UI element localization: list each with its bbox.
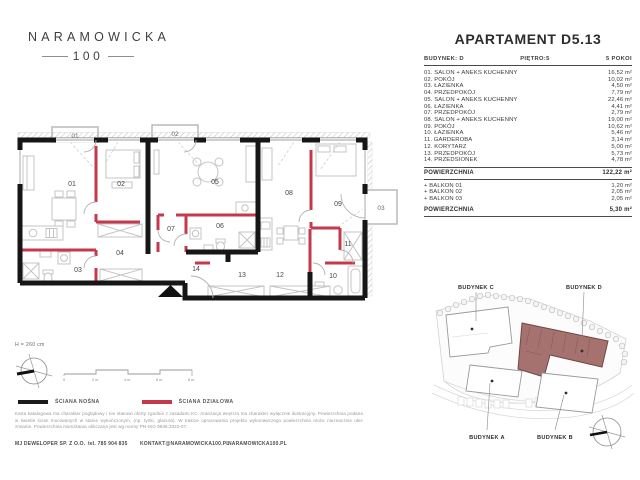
room-area: 4,50 m²: [611, 83, 632, 90]
site-building-b: [536, 373, 598, 413]
room-area: 3,14 m²: [611, 137, 632, 144]
meta-building: BUDYNEK: D: [424, 56, 464, 62]
balcony-item: + BALKON 032,05 m²: [424, 196, 632, 203]
footer-email: KONTAKT@NARAMOWICKA100.PL: [140, 441, 230, 447]
brand-subline: 100: [28, 49, 148, 63]
balcony-item: + BALKON 011,20 m²: [424, 183, 632, 190]
scale-tick-8m: 8 m: [188, 378, 194, 382]
room-area: 16,52 m²: [608, 70, 632, 77]
catalog-card-page: { "brand": {"name": "NARAMOWICKA", "numb…: [0, 0, 640, 480]
room-list-item: 01. SALON + ANEKS KUCHENNY16,52 m²: [424, 70, 632, 77]
balcony-number-03: 03: [377, 205, 385, 212]
room-number-06: 06: [216, 223, 224, 230]
room-list-item: 04. PRZEDPOKÓJ7,79 m²: [424, 90, 632, 97]
room-area: 22,46 m²: [608, 97, 632, 104]
apartment-info-panel: APARTAMENT D5.13 BUDYNEK: D PIĘTRO:5 5 P…: [424, 31, 632, 217]
room-area: 2,79 m²: [611, 110, 632, 117]
room-list-item: 02. POKÓJ10,02 m²: [424, 77, 632, 84]
room-list-item: 12. KORYTARZ5,00 m²: [424, 144, 632, 151]
room-area: 5,73 m²: [611, 151, 632, 158]
room-number-07: 07: [167, 226, 175, 233]
room-area: 4,41 m²: [611, 104, 632, 111]
load-bearing-label: ŚCIANA NOŚNA: [55, 399, 100, 405]
room-label: 14. PRZEDSIONEK: [424, 157, 478, 164]
room-area: 10,62 m²: [608, 124, 632, 131]
site-label-building-a: BUDYNEK A: [469, 435, 505, 441]
scale-tick-6m: 6 m: [156, 378, 162, 382]
balcony-area: 1,20 m²: [611, 183, 632, 190]
site-compass: [589, 415, 625, 449]
room-label: 04. PRZEDPOKÓJ: [424, 90, 475, 97]
site-label-building-c: BUDYNEK C: [458, 285, 494, 291]
room-number-11: 11: [344, 241, 351, 248]
room-label: 05. SALON + ANEKS KUCHENNY: [424, 97, 517, 104]
partition-label: ŚCIANA DZIAŁOWA: [179, 399, 234, 405]
wall-legend: ŚCIANA NOŚNA ŚCIANA DZIAŁOWA: [18, 399, 233, 405]
meta-rooms: 5 POKOI: [606, 56, 632, 62]
page-title: APARTAMENT D5.13: [424, 31, 632, 47]
room-area: 10,02 m²: [608, 77, 632, 84]
footer-website: NARAMOWICKA100.PL: [228, 441, 287, 447]
room-area: 4,78 m²: [611, 157, 632, 164]
balcony-item: + BALKON 022,05 m²: [424, 189, 632, 196]
balcony-label: + BALKON 02: [424, 189, 462, 196]
room-list-item: 10. ŁAZIENKA5,46 m²: [424, 130, 632, 137]
room-list-item: 07. PRZEDPOKÓJ2,79 m²: [424, 110, 632, 117]
balcony-total-value: 5,30 m²: [610, 207, 632, 213]
logo-line-right: [108, 56, 134, 57]
room-number-13: 13: [238, 272, 246, 279]
partition-swatch: [142, 400, 172, 405]
site-building-a: [466, 365, 522, 397]
total-area-label: POWIERZCHNIA: [424, 170, 474, 176]
compass-needle: [17, 371, 34, 374]
total-area-value: 122,22 m²: [602, 170, 632, 176]
legend-load-bearing: ŚCIANA NOŚNA: [18, 399, 100, 405]
room-label: 02. POKÓJ: [424, 77, 455, 84]
legend-partition: ŚCIANA DZIAŁOWA: [142, 399, 234, 405]
room-area: 5,00 m²: [611, 144, 632, 151]
logo-line-left: [42, 56, 68, 57]
scale-tick-2m: 2 m: [92, 378, 98, 382]
footer-phone: tel. 785 904 835: [88, 441, 128, 447]
room-list-item: 08. SALON + ANEKS KUCHENNY19,00 m²: [424, 117, 632, 124]
room-label: 10. ŁAZIENKA: [424, 130, 464, 137]
balcony-area: 2,05 m²: [611, 189, 632, 196]
room-area: 5,46 m²: [611, 130, 632, 137]
room-label: 12. KORYTARZ: [424, 144, 467, 151]
scale-tick-0: 0: [63, 378, 65, 382]
room-label: 08. SALON + ANEKS KUCHENNY: [424, 117, 517, 124]
room-area: 19,00 m²: [608, 117, 632, 124]
room-number-02: 02: [117, 181, 125, 188]
room-number-12: 12: [276, 272, 284, 279]
balcony-total-label: POWIERZCHNIA: [424, 207, 474, 213]
floor-plan: 01 02 03 04 05 06 07 08 09 10 11 12 13 1…: [8, 122, 428, 337]
room-number-10: 10: [329, 273, 337, 280]
load-bearing-swatch: [18, 400, 48, 405]
brand-number: 100: [73, 49, 104, 63]
room-list: 01. SALON + ANEKS KUCHENNY16,52 m² 02. P…: [424, 70, 632, 164]
ceiling-height-note: H = 260 cm: [15, 342, 45, 348]
room-number-14: 14: [192, 266, 200, 273]
footer-company: MJ DEWELOPER SP. Z O.O.: [15, 441, 85, 447]
room-label: 13. PRZEDPOKÓJ: [424, 151, 475, 158]
scale-bar: 0 2 m 4 m 6 m 8 m: [62, 364, 198, 382]
room-list-item: 13. PRZEDPOKÓJ5,73 m²: [424, 151, 632, 158]
room-area: 7,79 m²: [611, 90, 632, 97]
room-label: 07. PRZEDPOKÓJ: [424, 110, 475, 117]
room-list-item: 05. SALON + ANEKS KUCHENNY22,46 m²: [424, 97, 632, 104]
site-label-building-d: BUDYNEK D: [566, 285, 602, 291]
site-label-building-b: BUDYNEK B: [537, 435, 573, 441]
balcony-area: 2,05 m²: [611, 196, 632, 203]
compass-needle: [590, 432, 607, 435]
room-number-03: 03: [74, 267, 82, 274]
entrance-marker: [158, 285, 183, 297]
room-number-08: 08: [285, 190, 293, 197]
balcony-label: + BALKON 03: [424, 196, 462, 203]
balcony-number-02: 02: [171, 131, 179, 138]
room-number-01: 01: [68, 181, 76, 188]
meta-floor: PIĘTRO:5: [520, 56, 550, 62]
site-plan: BUDYNEK C BUDYNEK D BUDYNEK A BUDYNEK B: [430, 281, 636, 477]
room-number-05: 05: [211, 179, 219, 186]
plan-compass: [12, 352, 56, 396]
total-area-row: POWIERZCHNIA 122,22 m²: [424, 167, 632, 180]
room-label: 11. GARDEROBA: [424, 137, 472, 144]
room-label: 09. POKÓJ: [424, 124, 455, 131]
scale-tick-4m: 4 m: [124, 378, 130, 382]
room-number-09: 09: [334, 201, 342, 208]
room-list-item: 09. POKÓJ10,62 m²: [424, 124, 632, 131]
room-number-04: 04: [116, 250, 124, 257]
brand-logo: NARAMOWICKA 100: [28, 30, 148, 63]
room-label: 01. SALON + ANEKS KUCHENNY: [424, 70, 517, 77]
balcony-total-row: POWIERZCHNIA 5,30 m²: [424, 205, 632, 217]
balcony-list: + BALKON 011,20 m² + BALKON 022,05 m² + …: [424, 183, 632, 203]
balcony-number-01: 01: [71, 133, 79, 140]
apartment-meta: BUDYNEK: D PIĘTRO:5 5 POKOI: [424, 56, 632, 66]
brand-name: NARAMOWICKA: [28, 30, 148, 44]
room-list-item: 14. PRZEDSIONEK4,78 m²: [424, 157, 632, 164]
room-list-item: 11. GARDEROBA3,14 m²: [424, 137, 632, 144]
disclaimer-text: Karta katalogowa ma charakter poglądowy …: [15, 411, 363, 431]
balcony-label: + BALKON 01: [424, 183, 462, 190]
